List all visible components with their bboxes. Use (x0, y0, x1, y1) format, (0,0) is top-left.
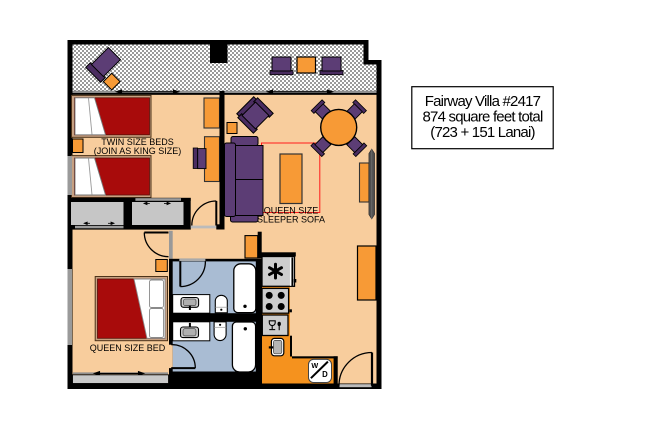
svg-text:QUEEN SIZE BED: QUEEN SIZE BED (90, 343, 166, 353)
svg-text:SLEEPER SOFA: SLEEPER SOFA (257, 215, 325, 225)
svg-text:W: W (311, 361, 318, 370)
svg-text:874 square feet total: 874 square feet total (423, 109, 543, 126)
svg-text:(JOIN AS KING SIZE): (JOIN AS KING SIZE) (94, 146, 182, 156)
svg-text:D: D (322, 370, 328, 379)
svg-text:Fairway Villa #2417: Fairway Villa #2417 (425, 93, 541, 110)
svg-text:(723 + 151 Lanai): (723 + 151 Lanai) (430, 124, 535, 141)
